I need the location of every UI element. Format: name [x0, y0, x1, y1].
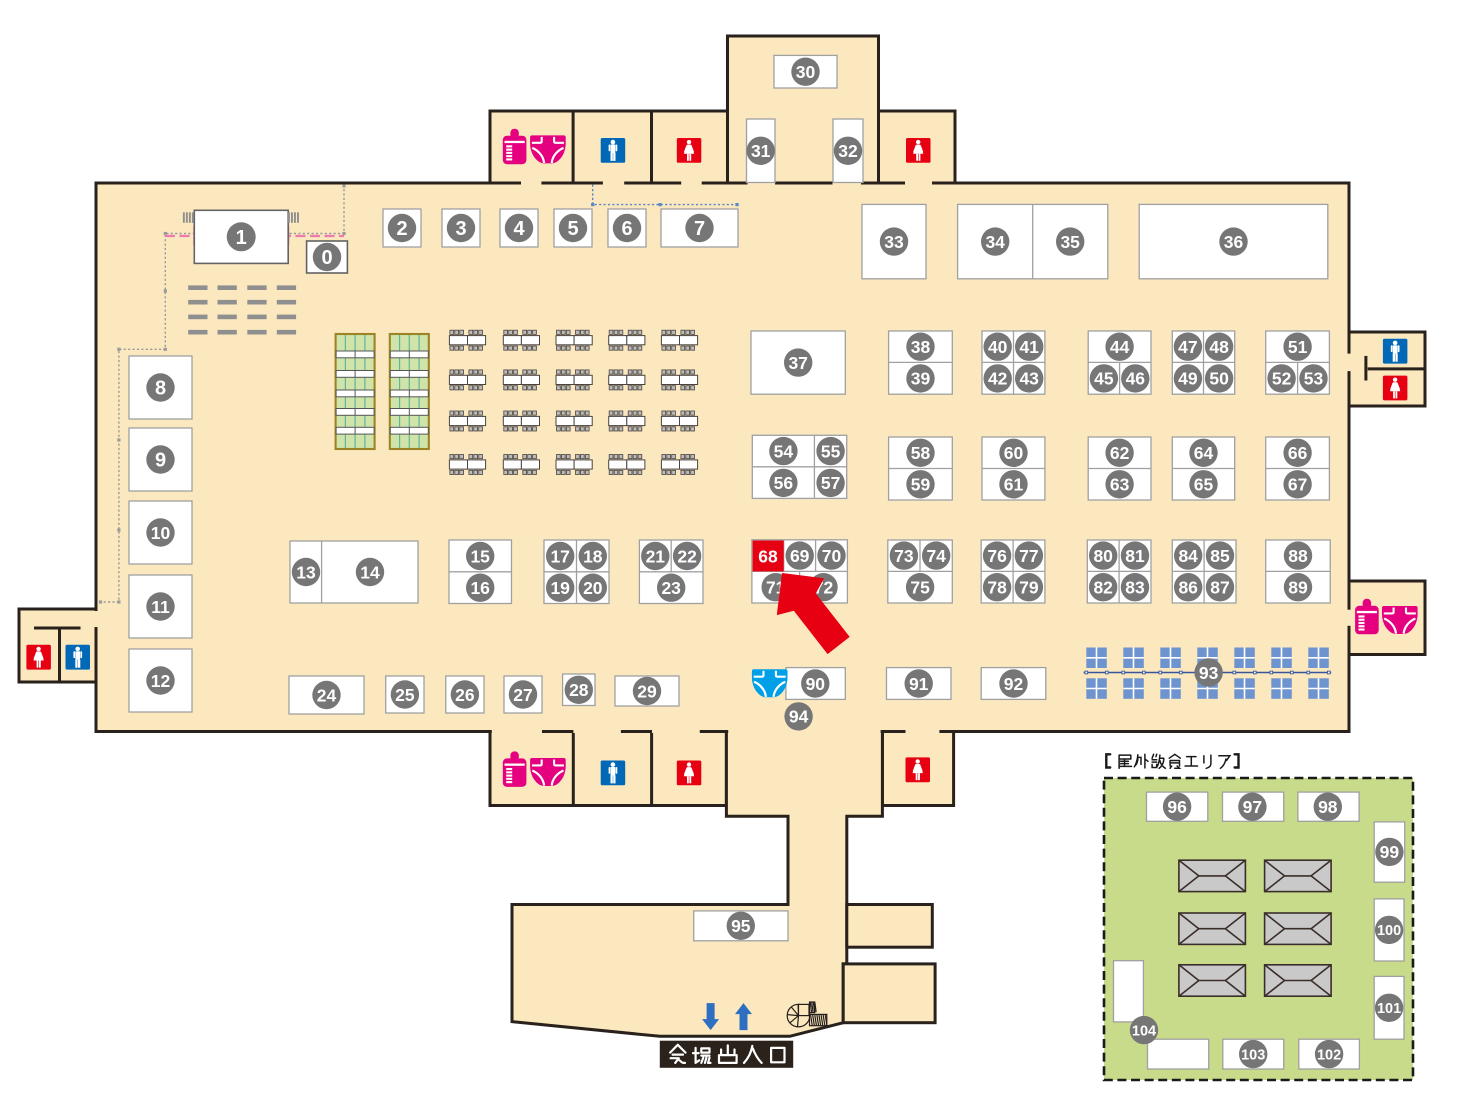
svg-text:81: 81 — [1125, 546, 1145, 566]
svg-text:66: 66 — [1288, 443, 1308, 463]
svg-text:23: 23 — [661, 578, 681, 598]
svg-text:39: 39 — [911, 369, 931, 389]
svg-text:83: 83 — [1125, 578, 1145, 598]
svg-text:45: 45 — [1094, 369, 1114, 389]
svg-text:8: 8 — [155, 378, 166, 400]
svg-text:64: 64 — [1194, 443, 1214, 463]
svg-text:82: 82 — [1093, 578, 1113, 598]
svg-text:10: 10 — [151, 523, 171, 543]
svg-text:4: 4 — [513, 218, 525, 240]
svg-text:87: 87 — [1210, 578, 1229, 598]
svg-text:60: 60 — [1004, 443, 1024, 463]
svg-text:28: 28 — [569, 680, 589, 700]
svg-text:90: 90 — [806, 674, 826, 694]
svg-text:100: 100 — [1377, 923, 1401, 939]
svg-text:25: 25 — [395, 685, 415, 705]
svg-text:3: 3 — [455, 218, 466, 240]
svg-text:12: 12 — [151, 671, 171, 691]
svg-text:77: 77 — [1019, 546, 1038, 566]
svg-text:46: 46 — [1126, 369, 1146, 389]
svg-text:63: 63 — [1110, 475, 1130, 495]
svg-text:73: 73 — [894, 546, 914, 566]
svg-text:34: 34 — [985, 232, 1005, 252]
svg-text:9: 9 — [155, 450, 166, 472]
svg-text:85: 85 — [1210, 546, 1230, 566]
svg-text:54: 54 — [774, 441, 794, 461]
svg-text:19: 19 — [550, 578, 570, 598]
svg-text:98: 98 — [1318, 797, 1338, 817]
svg-text:49: 49 — [1178, 369, 1198, 389]
svg-text:6: 6 — [621, 218, 632, 240]
svg-text:15: 15 — [470, 546, 490, 566]
svg-text:1: 1 — [236, 227, 247, 249]
svg-text:22: 22 — [677, 546, 697, 566]
svg-text:48: 48 — [1209, 337, 1229, 357]
svg-text:5: 5 — [567, 218, 578, 240]
svg-text:59: 59 — [911, 475, 931, 495]
svg-text:44: 44 — [1110, 337, 1130, 357]
svg-text:31: 31 — [751, 141, 771, 161]
svg-text:103: 103 — [1241, 1047, 1265, 1063]
svg-text:93: 93 — [1199, 663, 1219, 683]
svg-text:84: 84 — [1178, 546, 1198, 566]
svg-text:88: 88 — [1288, 546, 1308, 566]
svg-text:43: 43 — [1019, 369, 1039, 389]
svg-text:76: 76 — [987, 546, 1007, 566]
svg-text:14: 14 — [360, 562, 380, 582]
svg-text:68: 68 — [758, 546, 778, 566]
svg-text:102: 102 — [1317, 1047, 1341, 1063]
svg-text:52: 52 — [1272, 369, 1292, 389]
svg-text:70: 70 — [822, 546, 842, 566]
svg-text:95: 95 — [731, 916, 751, 936]
svg-text:69: 69 — [790, 546, 810, 566]
svg-text:7: 7 — [694, 218, 705, 240]
svg-text:89: 89 — [1288, 578, 1308, 598]
svg-text:96: 96 — [1167, 797, 1187, 817]
svg-text:94: 94 — [789, 707, 809, 727]
svg-text:80: 80 — [1093, 546, 1113, 566]
svg-text:58: 58 — [911, 443, 931, 463]
svg-text:13: 13 — [296, 562, 316, 582]
svg-text:74: 74 — [926, 546, 946, 566]
svg-text:101: 101 — [1377, 1001, 1401, 1017]
svg-text:62: 62 — [1110, 443, 1130, 463]
svg-text:75: 75 — [910, 578, 930, 598]
svg-text:17: 17 — [550, 546, 569, 566]
svg-text:35: 35 — [1060, 232, 1080, 252]
svg-text:50: 50 — [1209, 369, 1229, 389]
svg-text:86: 86 — [1178, 578, 1198, 598]
svg-text:47: 47 — [1178, 337, 1197, 357]
svg-text:18: 18 — [583, 546, 603, 566]
svg-text:78: 78 — [987, 578, 1007, 598]
svg-text:40: 40 — [988, 337, 1008, 357]
svg-text:51: 51 — [1288, 337, 1308, 357]
svg-text:27: 27 — [513, 685, 532, 705]
svg-text:36: 36 — [1224, 232, 1244, 252]
svg-text:24: 24 — [317, 685, 337, 705]
svg-text:92: 92 — [1004, 674, 1024, 694]
svg-text:38: 38 — [911, 337, 931, 357]
svg-text:0: 0 — [321, 247, 332, 269]
svg-text:104: 104 — [1132, 1023, 1156, 1039]
svg-text:56: 56 — [774, 473, 794, 493]
svg-text:33: 33 — [884, 232, 904, 252]
svg-text:11: 11 — [151, 597, 170, 617]
svg-text:26: 26 — [455, 685, 475, 705]
svg-text:91: 91 — [909, 674, 929, 694]
svg-text:55: 55 — [821, 441, 841, 461]
svg-text:42: 42 — [988, 369, 1008, 389]
svg-text:20: 20 — [583, 578, 603, 598]
svg-text:65: 65 — [1194, 475, 1214, 495]
svg-text:37: 37 — [788, 353, 807, 373]
svg-text:16: 16 — [470, 578, 490, 598]
svg-text:99: 99 — [1380, 842, 1400, 862]
svg-text:29: 29 — [637, 681, 657, 701]
svg-text:41: 41 — [1019, 337, 1039, 357]
svg-text:79: 79 — [1019, 578, 1039, 598]
svg-text:21: 21 — [646, 546, 666, 566]
svg-text:2: 2 — [396, 218, 407, 240]
svg-text:61: 61 — [1004, 475, 1024, 495]
svg-text:53: 53 — [1304, 369, 1324, 389]
svg-text:57: 57 — [821, 473, 840, 493]
svg-text:67: 67 — [1288, 475, 1307, 495]
svg-text:30: 30 — [796, 62, 816, 82]
svg-text:32: 32 — [838, 141, 858, 161]
svg-text:97: 97 — [1243, 797, 1262, 817]
